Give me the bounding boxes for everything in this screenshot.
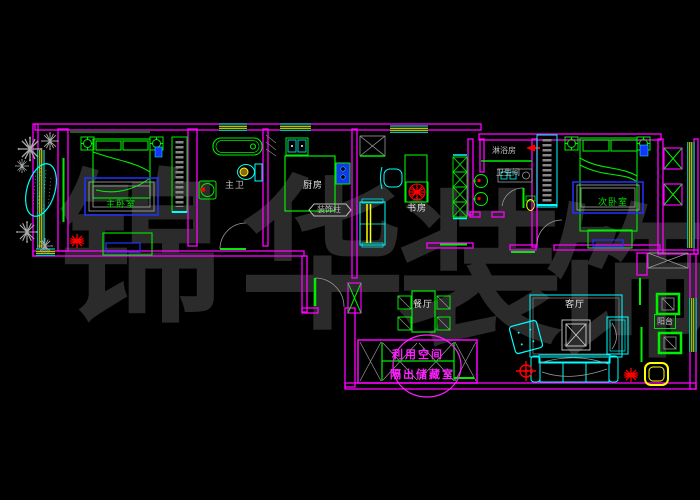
room-label-balcony: 阳台 — [654, 314, 676, 329]
stool-yellow — [645, 363, 668, 385]
dining-furniture — [398, 291, 450, 332]
closet-master — [172, 137, 187, 212]
windows — [36, 124, 696, 352]
coffee-table — [562, 320, 590, 350]
ceiling-fan-icon — [406, 182, 428, 202]
annotation-ellipse — [393, 335, 461, 397]
toilet2-icon — [526, 196, 535, 211]
hall-cabinet-cyan — [360, 199, 385, 247]
stove-icon — [336, 163, 350, 184]
sink-icon — [286, 138, 308, 155]
target-symbol — [516, 361, 536, 381]
sofa — [531, 355, 618, 382]
bedroom2-furniture — [440, 135, 650, 252]
right-balcony-columns — [664, 148, 682, 205]
room-label-shower: 淋浴房 — [492, 147, 516, 156]
dresser-master — [103, 233, 152, 255]
master-bedroom-furniture — [70, 132, 187, 255]
floorplan-canvas: 锦 华 装 饰 — [0, 0, 700, 500]
room-label-bedroom2: 次卧室 — [598, 199, 628, 209]
label-decor-column: 装饰柱 — [317, 206, 341, 215]
lounge-chair — [509, 320, 543, 354]
basin-icons — [473, 175, 488, 206]
bedroom2-door-arc — [537, 220, 562, 245]
tv-cabinet — [607, 317, 628, 354]
toilet-icon — [238, 164, 263, 181]
study-furniture — [360, 136, 467, 247]
bathroom2-door-arc — [502, 188, 524, 206]
floorplan-drawing — [0, 0, 700, 500]
closet-bedroom2 — [537, 135, 557, 207]
bath-door-arc — [220, 223, 246, 249]
door-arrow-icon — [526, 145, 540, 152]
annotation-line-2: 隔出储藏室 — [390, 369, 455, 381]
bed-bedroom2 — [580, 138, 637, 231]
living-furniture — [509, 295, 668, 385]
room-label-study: 书房 — [407, 205, 427, 215]
ac-cabinet — [648, 253, 688, 268]
entry-door-arc — [315, 278, 344, 307]
desk-chair — [381, 167, 403, 189]
bed-master — [93, 139, 150, 198]
plant-flower-icon — [624, 368, 638, 382]
room-label-living: 客厅 — [565, 301, 585, 311]
plant-pot — [657, 294, 679, 314]
room-label-kitchen: 厨房 — [303, 182, 323, 192]
plant-flower-icon — [70, 234, 84, 248]
wardrobe-icon — [360, 136, 385, 156]
plant-pot — [659, 333, 681, 353]
annotation-line-1: 利用空间 — [392, 349, 444, 361]
room-label-master-bedroom: 主卧室 — [106, 201, 136, 211]
shelf-column — [453, 155, 467, 219]
room-label-dining: 餐厅 — [413, 301, 433, 311]
master-bath-fixtures — [199, 135, 276, 249]
storage-unit — [358, 335, 477, 397]
bathtub-icon — [213, 138, 262, 155]
washer-icon — [199, 181, 216, 199]
room-label-bathroom: 卫生间 — [496, 169, 520, 178]
dining-table — [412, 291, 435, 332]
room-label-master-bath: 主卫 — [225, 182, 245, 192]
